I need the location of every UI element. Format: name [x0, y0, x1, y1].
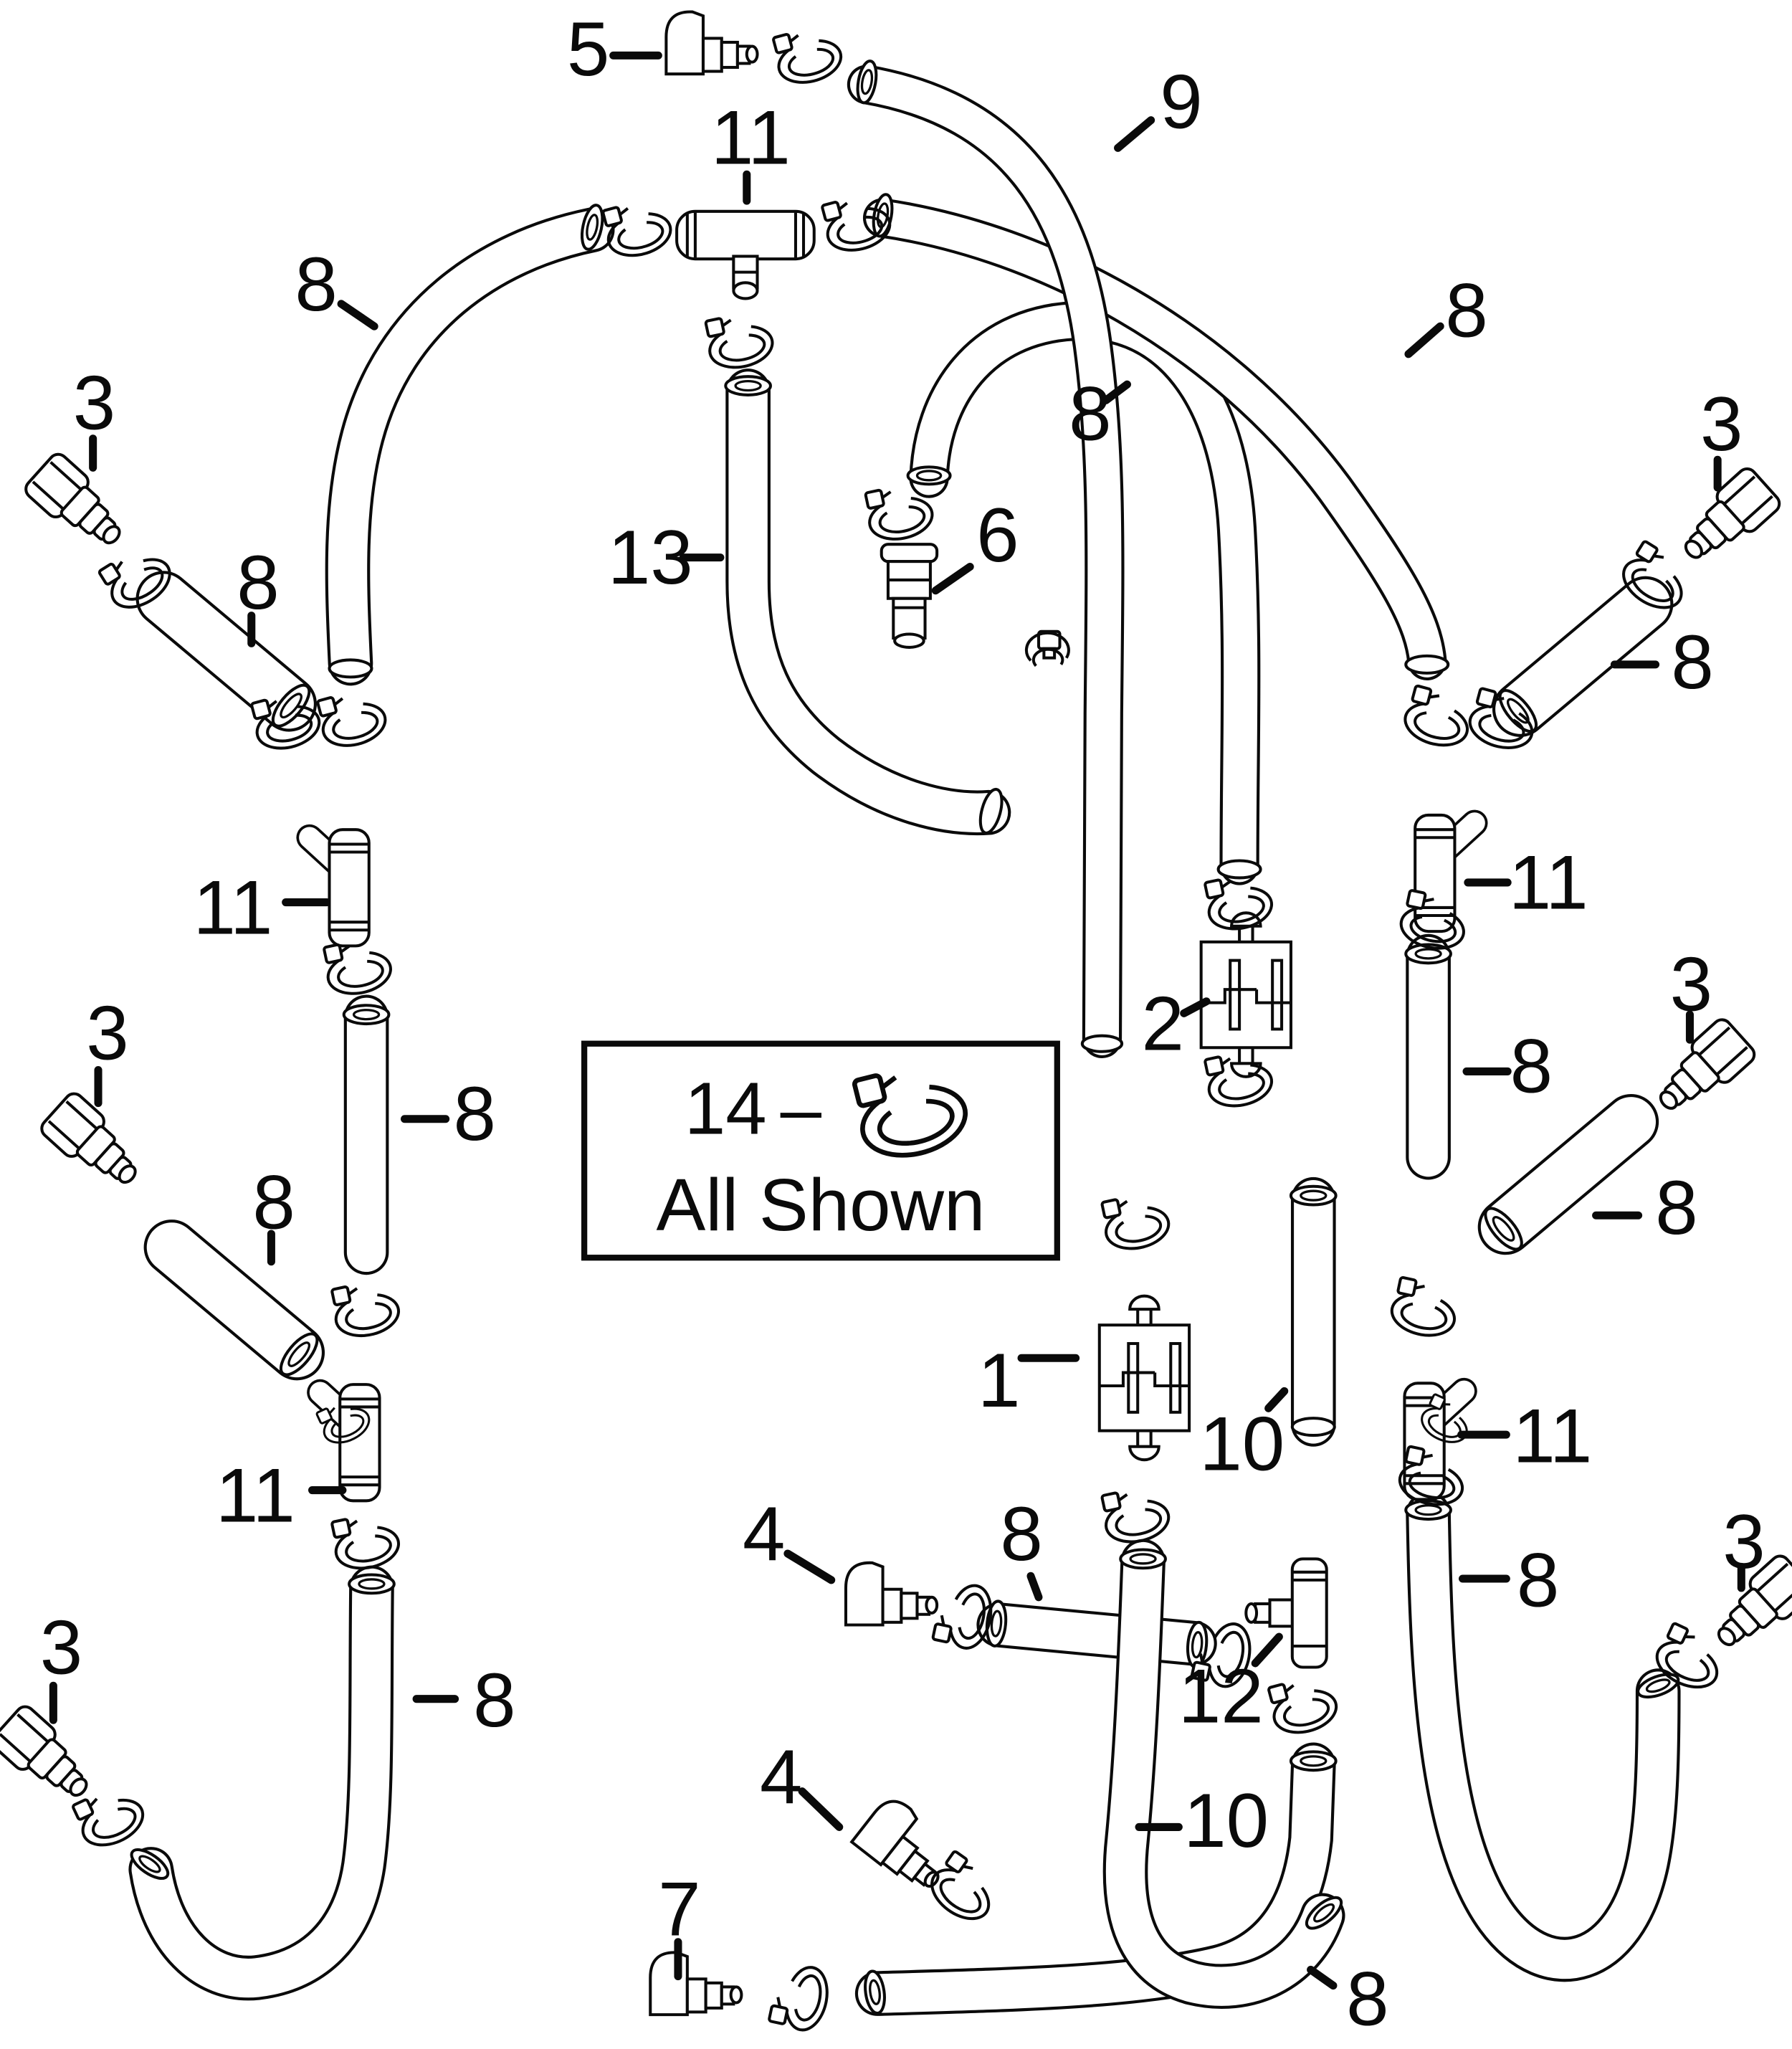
callout-label-11: 11 [711, 94, 791, 180]
hose-clamp-icon [1266, 1672, 1340, 1739]
callout-layer: 5119883811136838828381138110841210113831… [40, 6, 1765, 2042]
elbow-5 [666, 11, 757, 74]
hose-clamp-icon [771, 22, 845, 89]
callout-label-3: 3 [1722, 1498, 1765, 1584]
callout-label-8: 8 [1655, 1164, 1697, 1250]
callout-label-4: 4 [760, 1734, 802, 1820]
callout-label-1: 1 [978, 1337, 1020, 1423]
callout-leader-8 [1031, 1576, 1039, 1597]
hose-8-right-vertical [1406, 945, 1451, 1158]
callout-label-8: 8 [1069, 370, 1111, 456]
callout-leader-8 [1409, 326, 1440, 354]
elbow-4-upper [846, 1563, 937, 1625]
tube-8-left-lower [156, 1228, 323, 1380]
tee-11-right-upper [1415, 815, 1474, 931]
callout-leader-4 [788, 1554, 831, 1580]
callout-label-8: 8 [1000, 1491, 1042, 1577]
hose-8-top-left [329, 204, 606, 678]
hose-8-left-vertical [344, 1005, 389, 1252]
hose-8-top-right [871, 193, 1449, 673]
note-box-note: All Shown [657, 1164, 986, 1246]
connector-3-left-upper [22, 450, 134, 558]
callout-label-13: 13 [608, 514, 693, 600]
exploded-parts-diagram: 14 – All Shown 5119883811136838828381138… [0, 0, 1792, 2049]
callout-leader-4 [802, 1792, 839, 1827]
tee-11-top [677, 211, 814, 299]
callout-label-8: 8 [1671, 619, 1713, 705]
callout-label-10: 10 [1183, 1777, 1269, 1863]
note-box-separator: – [781, 1067, 822, 1149]
callout-label-8: 8 [237, 539, 279, 625]
plug-6 [882, 544, 937, 647]
tube-8-left-upper [148, 579, 315, 731]
callout-label-3: 3 [73, 360, 115, 446]
callout-label-4: 4 [743, 1491, 785, 1577]
callout-label-11: 11 [216, 1453, 295, 1539]
hose-clamp-icon [1100, 1190, 1173, 1254]
callout-leader-9 [1118, 120, 1151, 148]
connector-12 [1246, 1559, 1326, 1667]
callout-label-8: 8 [252, 1159, 295, 1245]
hose-8-horizontal [985, 1600, 1208, 1668]
hose-clamp-icon [923, 1850, 1005, 1929]
hose-clamp-icon [330, 1510, 403, 1574]
elbow-7 [650, 1952, 741, 2015]
callout-label-8: 8 [473, 1657, 515, 1743]
hose-10-upper [1291, 1187, 1336, 1435]
connector-3-left-middle [38, 1090, 150, 1198]
callout-label-6: 6 [976, 492, 1019, 578]
callout-leader-6 [935, 567, 970, 591]
hose-8-left-j [127, 1574, 394, 1978]
callout-leader-8 [341, 304, 374, 326]
check-valve-2 [1201, 913, 1291, 1076]
hose-clamp-icon [330, 1277, 403, 1341]
callout-label-7: 7 [658, 1865, 700, 1951]
hose-clamp-icon [1401, 685, 1475, 751]
hose-clamp-icon [1388, 1277, 1461, 1341]
callout-label-8: 8 [453, 1070, 495, 1156]
hose-clamp-icon [315, 685, 390, 752]
callout-label-11: 11 [1509, 840, 1588, 926]
hose-clamp-icon [768, 1961, 832, 2034]
callout-label-3: 3 [1700, 381, 1743, 467]
tube-8-right-lower [1479, 1103, 1647, 1255]
tee-11-left-lower [320, 1384, 380, 1501]
callout-leader-8 [1311, 1969, 1333, 1985]
note-box-part-number: 14 [685, 1067, 767, 1149]
callout-label-3: 3 [1670, 941, 1712, 1027]
diagram-page: 14 – All Shown 5119883811136838828381138… [0, 0, 1792, 2049]
hose-clamp-icon [703, 309, 776, 373]
connector-3-right-upper [1671, 465, 1783, 574]
hose-13 [725, 376, 1006, 835]
callout-label-9: 9 [1160, 59, 1202, 145]
callout-label-5: 5 [567, 6, 609, 92]
note-box: 14 – All Shown [584, 1044, 1057, 1258]
screw-clamp-icon [1026, 632, 1069, 666]
callout-label-12: 12 [1178, 1653, 1264, 1739]
callout-label-8: 8 [1346, 1956, 1388, 2042]
callout-label-8: 8 [1517, 1536, 1559, 1622]
callout-label-2: 2 [1142, 981, 1184, 1067]
connector-3-right-middle [1646, 1016, 1758, 1124]
callout-label-8: 8 [1445, 267, 1487, 353]
callout-label-11: 11 [194, 865, 273, 951]
check-valve-1 [1100, 1296, 1189, 1460]
hose-clamp-icon [1100, 1483, 1173, 1547]
callout-label-3: 3 [86, 990, 128, 1076]
tee-11-left-upper [310, 829, 369, 946]
elbow-4-lower [852, 1793, 962, 1898]
callout-label-8: 8 [1510, 1023, 1553, 1109]
callout-label-11: 11 [1512, 1393, 1592, 1479]
callout-label-3: 3 [40, 1604, 82, 1690]
hose-clamp-icon [601, 195, 675, 262]
callout-label-10: 10 [1199, 1401, 1285, 1487]
callout-label-8: 8 [295, 241, 337, 327]
